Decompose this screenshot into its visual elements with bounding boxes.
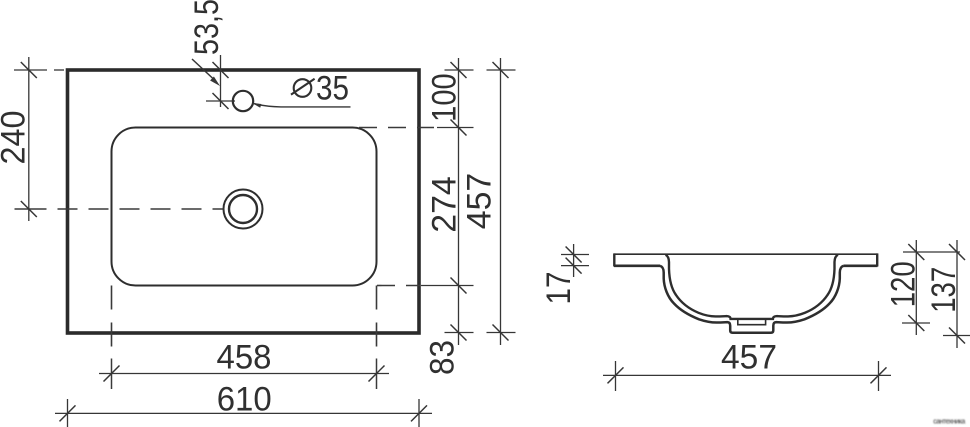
svg-text:137: 137: [925, 267, 963, 313]
svg-text:100: 100: [425, 73, 463, 122]
svg-text:120: 120: [885, 261, 923, 307]
svg-text:сантехника: сантехника: [933, 419, 965, 426]
svg-text:240: 240: [0, 111, 32, 165]
svg-text:35: 35: [316, 70, 349, 108]
svg-text:610: 610: [217, 380, 272, 418]
svg-text:17: 17: [540, 272, 578, 305]
svg-text:83: 83: [423, 340, 461, 375]
svg-text:457: 457: [461, 173, 499, 230]
svg-text:458: 458: [217, 339, 272, 377]
svg-text:274: 274: [426, 176, 464, 233]
svg-text:53,5: 53,5: [188, 0, 226, 55]
svg-text:457: 457: [721, 338, 777, 376]
